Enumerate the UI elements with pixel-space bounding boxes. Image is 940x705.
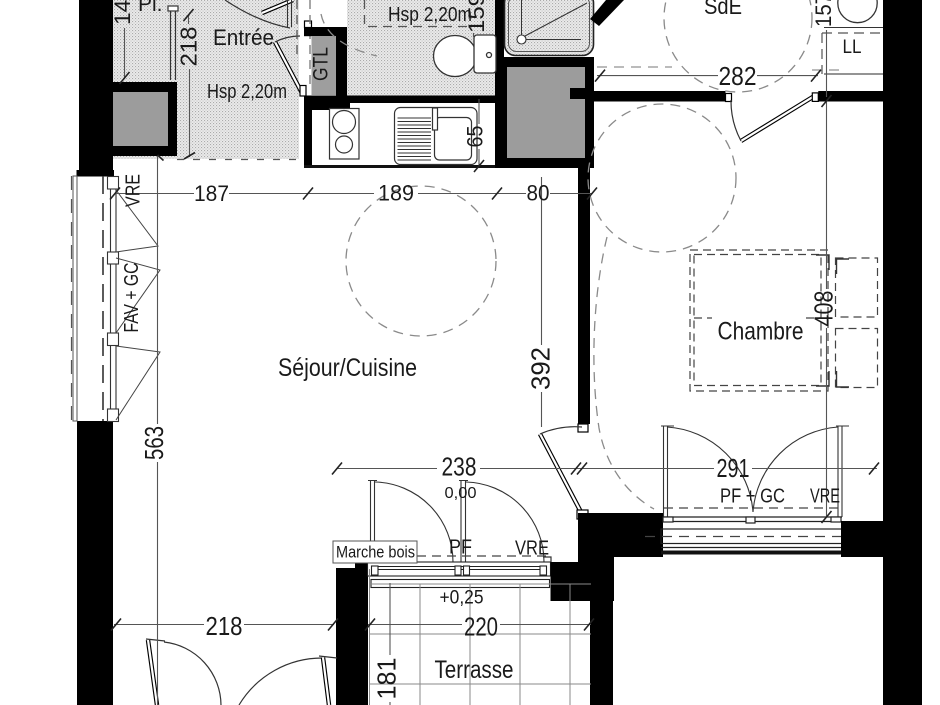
svg-text:563: 563: [139, 426, 169, 460]
svg-text:Pl.: Pl.: [138, 0, 163, 16]
svg-text:+0,25: +0,25: [440, 588, 484, 609]
svg-text:PF: PF: [449, 537, 472, 559]
svg-text:65: 65: [463, 126, 488, 148]
svg-text:220: 220: [464, 612, 498, 642]
svg-text:291: 291: [717, 453, 750, 483]
svg-text:408: 408: [809, 291, 839, 327]
svg-text:0,00: 0,00: [445, 485, 477, 502]
svg-text:392: 392: [526, 347, 556, 390]
svg-text:238: 238: [442, 452, 477, 482]
svg-text:Hsp 2,20m: Hsp 2,20m: [207, 81, 287, 103]
svg-text:VRE: VRE: [123, 174, 145, 207]
svg-text:SdE: SdE: [704, 0, 742, 19]
svg-text:Entrée: Entrée: [213, 25, 274, 50]
svg-text:FAV + GC: FAV + GC: [121, 263, 143, 333]
svg-text:140: 140: [110, 0, 135, 25]
svg-text:189: 189: [378, 181, 414, 206]
svg-text:VRE: VRE: [515, 538, 549, 560]
svg-text:VRE: VRE: [810, 486, 840, 508]
svg-text:Hsp 2,20m: Hsp 2,20m: [388, 4, 472, 26]
svg-text:181: 181: [372, 658, 402, 700]
svg-text:282: 282: [719, 61, 757, 91]
svg-text:PF + GC: PF + GC: [720, 486, 785, 508]
svg-text:Marche bois: Marche bois: [336, 543, 415, 562]
svg-text:LL: LL: [843, 37, 862, 58]
svg-text:159: 159: [464, 0, 489, 33]
svg-text:187: 187: [194, 181, 229, 206]
svg-text:157: 157: [811, 0, 836, 27]
svg-text:GTL: GTL: [310, 47, 333, 81]
svg-text:80: 80: [527, 181, 550, 206]
svg-text:218: 218: [176, 27, 202, 67]
svg-text:218: 218: [206, 611, 243, 641]
svg-text:Séjour/Cuisine: Séjour/Cuisine: [278, 354, 417, 382]
svg-text:Chambre: Chambre: [718, 318, 804, 346]
svg-text:Terrasse: Terrasse: [435, 656, 514, 684]
